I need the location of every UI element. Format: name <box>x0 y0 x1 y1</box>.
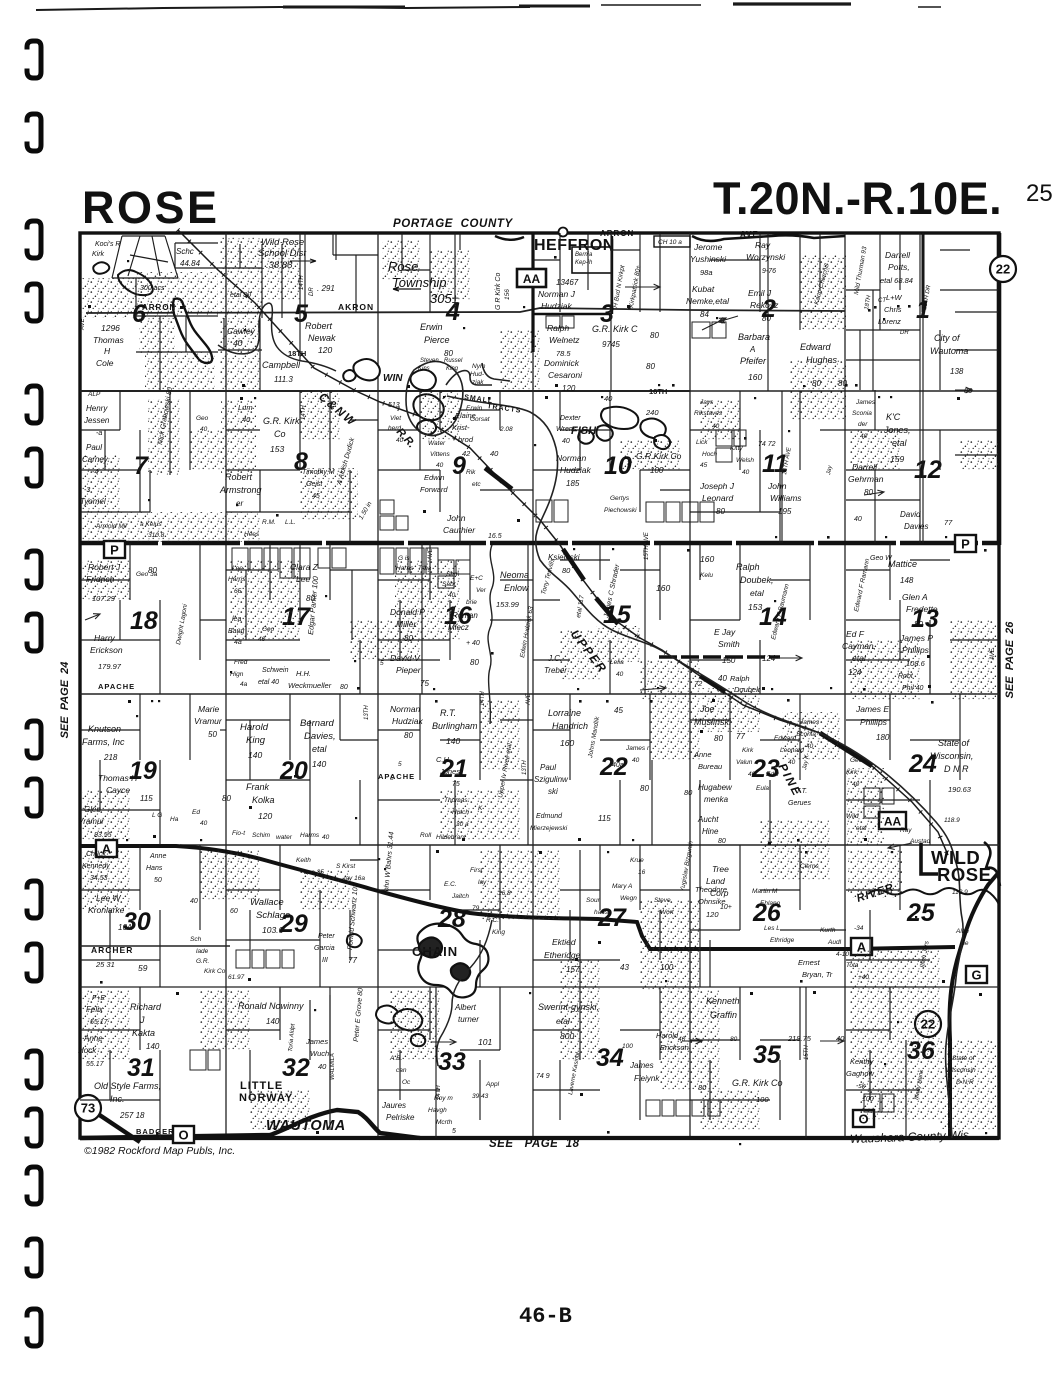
svg-text:40: 40 <box>318 1062 327 1071</box>
svg-text:APACHE: APACHE <box>98 682 135 691</box>
svg-text:Lick: Lick <box>696 439 708 446</box>
svg-text:5: 5 <box>452 1128 456 1135</box>
svg-text:Krue: Krue <box>630 857 644 864</box>
svg-text:Mattice: Mattice <box>888 559 917 569</box>
svg-text:40: 40 <box>742 469 750 476</box>
svg-text:Hugabew: Hugabew <box>698 783 733 792</box>
svg-text:Rik: Rik <box>466 469 476 476</box>
svg-text:H.H.: H.H. <box>296 669 311 678</box>
svg-text:16A: 16A <box>118 923 132 932</box>
svg-text:G.R. Kirk Co: G.R. Kirk Co <box>732 1078 783 1088</box>
svg-text:H: H <box>104 346 111 356</box>
svg-text:Bernard: Bernard <box>300 718 335 729</box>
svg-text:16: 16 <box>638 869 646 876</box>
svg-text:Neoma: Neoma <box>500 570 529 580</box>
svg-text:44.84: 44.84 <box>180 259 201 268</box>
svg-text:Water: Water <box>428 440 446 447</box>
svg-text:Kurth: Kurth <box>820 927 836 934</box>
svg-text:59: 59 <box>138 963 148 973</box>
svg-text:107.29: 107.29 <box>92 594 116 603</box>
svg-text:9-76: 9-76 <box>762 268 776 275</box>
svg-text:-4: -4 <box>92 469 98 476</box>
svg-text:John: John <box>446 513 466 523</box>
svg-text:75: 75 <box>420 679 429 688</box>
svg-text:Pierce: Pierce <box>424 335 450 345</box>
svg-text:77: 77 <box>944 518 953 527</box>
svg-text:80: 80 <box>716 507 725 516</box>
svg-text:F+E: F+E <box>92 995 105 1002</box>
svg-text:Darrell: Darrell <box>885 250 911 260</box>
svg-text:Graffin: Graffin <box>710 1010 737 1020</box>
svg-text:Doubek: Doubek <box>734 685 761 694</box>
svg-text:haus: haus <box>594 909 609 916</box>
svg-text:31: 31 <box>127 1054 155 1082</box>
svg-text:Krist-: Krist- <box>452 423 470 432</box>
svg-text:Farms, Inc: Farms, Inc <box>82 737 125 747</box>
svg-text:City of: City of <box>934 333 961 343</box>
svg-text:80: 80 <box>718 838 726 845</box>
svg-text:Baug: Baug <box>228 628 244 635</box>
svg-text:K: K <box>478 805 483 812</box>
svg-text:CH 10 a: CH 10 a <box>658 239 682 246</box>
svg-text:140: 140 <box>146 1042 160 1051</box>
svg-text:Burlingham: Burlingham <box>432 721 478 731</box>
svg-text:40: 40 <box>748 771 756 778</box>
svg-text:James P: James P <box>899 633 933 643</box>
svg-text:Hees: Hees <box>244 531 260 538</box>
svg-text:R.M.: R.M. <box>262 519 276 526</box>
svg-text:Norman J: Norman J <box>538 289 576 299</box>
svg-text:turner: turner <box>458 1015 479 1024</box>
svg-text:103.6: 103.6 <box>262 925 284 935</box>
svg-text:73: 73 <box>81 1101 95 1116</box>
svg-text:80: 80 <box>914 620 923 629</box>
svg-text:etal: etal <box>852 653 867 663</box>
svg-text:DR: DR <box>309 287 315 296</box>
svg-text:Emil J: Emil J <box>748 288 772 298</box>
svg-text:T.T.: T.T. <box>796 788 807 795</box>
svg-text:40: 40 <box>604 394 613 403</box>
svg-text:80: 80 <box>470 658 479 667</box>
svg-text:80: 80 <box>222 794 231 803</box>
svg-text:Cauthier: Cauthier <box>443 525 476 535</box>
svg-text:CT: CT <box>878 298 887 304</box>
svg-text:159: 159 <box>890 454 904 464</box>
svg-text:Ed: Ed <box>192 809 200 816</box>
svg-text:Jaures: Jaures <box>381 1101 406 1110</box>
svg-text:Glen A: Glen A <box>902 592 928 602</box>
svg-text:G.R.: G.R. <box>196 958 210 965</box>
svg-text:Kirk: Kirk <box>92 251 105 258</box>
svg-text:40: 40 <box>242 415 251 424</box>
svg-text:100: 100 <box>660 963 674 972</box>
svg-text:80: 80 <box>640 784 649 793</box>
svg-text:Wrens: Wrens <box>556 426 577 433</box>
svg-text:etc: etc <box>472 481 481 488</box>
svg-text:120: 120 <box>318 345 332 355</box>
svg-text:Robert: Robert <box>305 321 333 331</box>
svg-text:80: 80 <box>714 734 723 743</box>
svg-text:HEFFRON: HEFFRON <box>534 237 615 254</box>
svg-text:160: 160 <box>700 554 714 564</box>
svg-text:R.T.: R.T. <box>440 708 456 718</box>
svg-text:18: 18 <box>130 607 158 635</box>
svg-text:160: 160 <box>656 583 670 593</box>
svg-text:etal 80: etal 80 <box>230 292 251 299</box>
svg-text:61.97: 61.97 <box>228 974 245 981</box>
svg-text:140: 140 <box>312 759 326 769</box>
svg-text:40: 40 <box>396 437 404 444</box>
svg-text:218.75: 218.75 <box>787 1034 812 1043</box>
svg-text:34: 34 <box>596 1044 624 1072</box>
svg-text:Wisconsin: Wisconsin <box>946 1067 976 1074</box>
svg-text:Albert: Albert <box>454 1003 477 1012</box>
svg-text:Gerues: Gerues <box>788 800 811 807</box>
svg-text:80: 80 <box>812 379 821 388</box>
svg-text:G: G <box>971 968 981 983</box>
svg-text:P: P <box>961 537 970 552</box>
svg-text:16TH: 16TH <box>649 387 667 396</box>
svg-text:G.R. Kirk: G.R. Kirk <box>263 416 300 426</box>
svg-text:160: 160 <box>748 372 762 382</box>
svg-text:Forward: Forward <box>420 485 448 494</box>
svg-text:7: 7 <box>134 452 149 480</box>
svg-text:Ver: Ver <box>476 587 487 594</box>
svg-text:153.99: 153.99 <box>496 600 520 609</box>
svg-text:25: 25 <box>906 899 936 927</box>
svg-text:D N R: D N R <box>956 1079 974 1086</box>
svg-text:18TH: 18TH <box>288 349 306 358</box>
svg-text:Campbell: Campbell <box>262 360 301 370</box>
svg-text:80: 80 <box>404 731 413 740</box>
svg-text:Robert J: Robert J <box>88 562 121 572</box>
svg-text:+ 40: + 40 <box>466 640 480 647</box>
svg-text:Jones,: Jones, <box>883 425 911 435</box>
svg-text:King: King <box>246 735 266 746</box>
svg-text:Sconia: Sconia <box>852 410 872 417</box>
svg-text:Newak: Newak <box>308 333 336 343</box>
svg-text:Tota: Tota <box>846 962 859 969</box>
svg-text:. 291: . 291 <box>317 284 335 293</box>
svg-text:40: 40 <box>200 820 208 827</box>
svg-text:180: 180 <box>876 733 890 742</box>
svg-text:2.08: 2.08 <box>499 426 513 433</box>
svg-text:Austad: Austad <box>909 838 931 845</box>
svg-text:Hudziak: Hudziak <box>392 716 423 726</box>
svg-text:Swerint-gynski,: Swerint-gynski, <box>538 1002 599 1012</box>
svg-text:State of: State of <box>952 1055 976 1062</box>
svg-text:Tree: Tree <box>712 864 729 874</box>
svg-text:80: 80 <box>684 788 693 797</box>
svg-text:157: 157 <box>566 965 580 974</box>
svg-text:Hock: Hock <box>78 1046 97 1055</box>
svg-text:115: 115 <box>140 794 153 803</box>
svg-text:etal 68.84: etal 68.84 <box>880 276 913 285</box>
svg-text:Ehlano: Ehlano <box>760 900 781 907</box>
svg-text:40: 40 <box>562 438 570 445</box>
svg-text:Erwin: Erwin <box>420 322 443 332</box>
svg-text:Jessen: Jessen <box>83 416 110 425</box>
svg-text:Roman: Roman <box>452 611 478 620</box>
svg-text:brod: brod <box>458 435 474 444</box>
svg-text:Ray: Ray <box>755 240 771 250</box>
svg-text:Anne: Anne <box>149 853 166 860</box>
svg-text:WALMILA: WALMILA <box>330 1053 336 1080</box>
svg-text:CHAIN: CHAIN <box>412 944 458 959</box>
svg-text:Harris: Harris <box>396 565 414 572</box>
svg-text:Albe: Albe <box>955 928 969 935</box>
svg-text:42: 42 <box>462 449 471 458</box>
svg-text:800: 800 <box>560 1031 574 1041</box>
svg-text:15TH AVE: 15TH AVE <box>644 531 650 560</box>
svg-text:80: 80 <box>562 566 571 575</box>
svg-text:40: 40 <box>860 433 868 440</box>
svg-text:Bryan, Tr: Bryan, Tr <box>802 970 833 979</box>
svg-text:80: 80 <box>650 331 659 340</box>
svg-text:120: 120 <box>706 910 719 919</box>
svg-text:13467: 13467 <box>556 278 579 287</box>
svg-text:lea: lea <box>232 616 241 623</box>
svg-text:AVE: AVE <box>740 230 759 239</box>
svg-text:Pelriske: Pelriske <box>386 1113 415 1122</box>
svg-text:Gagnow: Gagnow <box>846 1069 875 1078</box>
svg-text:S Kirst: S Kirst <box>336 863 356 870</box>
svg-text:Erickson: Erickson <box>90 645 123 655</box>
svg-text:Ray: Ray <box>900 827 912 834</box>
svg-text:Wild: Wild <box>846 813 859 820</box>
svg-text:Valun: Valun <box>736 759 753 766</box>
svg-text:James: James <box>305 1037 328 1046</box>
svg-text:Williams: Williams <box>770 493 802 503</box>
svg-text:40: 40 <box>616 671 624 678</box>
svg-text:25: 25 <box>1026 180 1053 207</box>
svg-text:Schlage: Schlage <box>256 910 290 921</box>
svg-text:Henry: Henry <box>86 404 108 413</box>
svg-text:der: der <box>858 421 868 428</box>
svg-text:Jerome: Jerome <box>693 242 723 252</box>
svg-text:-3: -3 <box>84 487 90 494</box>
svg-text:Edward: Edward <box>800 342 832 352</box>
svg-text:4a: 4a <box>240 681 248 688</box>
svg-text:Szigulinw: Szigulinw <box>534 775 569 784</box>
svg-text:Harold: Harold <box>656 1031 679 1040</box>
svg-text:Fleiynk: Fleiynk <box>634 1074 660 1083</box>
svg-text:Geo 3a: Geo 3a <box>136 571 158 578</box>
svg-text:Piechowski: Piechowski <box>604 507 637 514</box>
svg-text:310.8: 310.8 <box>148 532 165 539</box>
svg-text:Geo: Geo <box>262 626 275 633</box>
svg-text:Kakta: Kakta <box>132 1028 155 1038</box>
svg-text:Appl: Appl <box>485 1081 500 1088</box>
svg-text:Schwein: Schwein <box>262 667 289 674</box>
svg-text:Miller: Miller <box>396 619 417 629</box>
svg-text:James E: James E <box>855 704 889 714</box>
svg-text:ALP: ALP <box>87 391 101 398</box>
svg-text:80: 80 <box>444 349 453 358</box>
svg-text:Ralph: Ralph <box>736 562 760 572</box>
svg-text:46-B: 46-B <box>519 1304 572 1329</box>
svg-text:G.R.Kirk Co: G.R.Kirk Co <box>636 451 682 461</box>
svg-text:John: John <box>767 481 787 491</box>
svg-text:Hutch: Hutch <box>452 809 469 816</box>
svg-text:Timothy M: Timothy M <box>302 469 335 476</box>
svg-text:Wautoma: Wautoma <box>930 346 968 356</box>
svg-text:Bureau: Bureau <box>698 762 723 771</box>
svg-text:Richard: Richard <box>130 1002 162 1012</box>
svg-text:40: 40 <box>788 759 796 766</box>
svg-text:G.R. Kirk C: G.R. Kirk C <box>592 324 638 334</box>
svg-text:79: 79 <box>472 905 480 912</box>
svg-text:L G: L G <box>152 812 162 819</box>
svg-text:98a: 98a <box>700 268 713 277</box>
svg-text:218: 218 <box>103 753 118 762</box>
svg-text:16.8: 16.8 <box>498 890 511 897</box>
svg-text:Hans: Hans <box>146 865 163 872</box>
svg-text:Marie: Marie <box>198 704 220 714</box>
svg-text:Armold Mil: Armold Mil <box>95 523 127 530</box>
svg-text:Edw: Edw <box>766 771 780 778</box>
svg-text:80: 80 <box>838 379 847 388</box>
svg-text:240: 240 <box>645 408 659 417</box>
svg-text:190.63: 190.63 <box>948 785 972 794</box>
svg-text:15TH: 15TH <box>804 1045 810 1060</box>
svg-text:Hudziak: Hudziak <box>560 465 591 475</box>
svg-text:First: First <box>470 867 484 874</box>
svg-text:39.43: 39.43 <box>472 1093 489 1100</box>
svg-text:AVE: AVE <box>990 647 996 661</box>
svg-text:45: 45 <box>312 493 320 500</box>
svg-text:80: 80 <box>340 684 348 691</box>
svg-text:ARCHER: ARCHER <box>91 945 133 955</box>
svg-text:Tyomel: Tyomel <box>80 497 106 506</box>
svg-text:Lorraine: Lorraine <box>548 708 581 718</box>
svg-text:40: 40 <box>678 1036 686 1043</box>
svg-text:Cayman,: Cayman, <box>842 641 876 651</box>
svg-text:Wort: Wort <box>660 909 675 916</box>
svg-text:Co: Co <box>274 429 286 439</box>
svg-text:40: 40 <box>852 781 860 788</box>
svg-text:60: 60 <box>230 908 238 915</box>
svg-text:Lelia: Lelia <box>610 659 624 666</box>
svg-text:108.6: 108.6 <box>906 659 926 668</box>
svg-text:O: O <box>178 1128 188 1143</box>
svg-text:Handrich: Handrich <box>552 721 588 731</box>
svg-text:40: 40 <box>200 426 208 433</box>
svg-text:Frank: Frank <box>246 782 270 792</box>
svg-text:Gorsat: Gorsat <box>470 416 491 423</box>
svg-text:T.20N.-R.10E.: T.20N.-R.10E. <box>713 173 1002 224</box>
svg-text:E Jay: E Jay <box>714 627 736 637</box>
svg-text:Jones: Jones <box>439 767 460 776</box>
svg-text:Jaitch: Jaitch <box>451 893 469 900</box>
svg-text:R.C.: R.C. <box>486 917 499 924</box>
svg-text:Harry: Harry <box>94 633 116 643</box>
svg-text:124: 124 <box>762 654 776 663</box>
svg-text:50: 50 <box>154 877 162 884</box>
svg-text:Darrell: Darrell <box>852 462 878 472</box>
svg-text:+40: +40 <box>858 974 869 981</box>
svg-text:153: 153 <box>748 602 762 612</box>
svg-text:G R Kirk Co: G R Kirk Co <box>495 273 502 310</box>
svg-text:Kirk: Kirk <box>742 747 754 754</box>
svg-text:Vramur: Vramur <box>194 716 223 726</box>
svg-text:Erickson: Erickson <box>660 1043 689 1052</box>
svg-text:101: 101 <box>478 1037 492 1047</box>
svg-text:50: 50 <box>208 730 217 739</box>
svg-text:30 a: 30 a <box>456 821 469 828</box>
svg-text:Edwin: Edwin <box>424 473 444 482</box>
svg-text:APACHE: APACHE <box>378 772 415 781</box>
svg-text:etal: etal <box>312 744 328 754</box>
svg-text:Eula: Eula <box>756 785 769 792</box>
svg-text:120: 120 <box>562 384 576 393</box>
svg-text:water: water <box>276 834 293 841</box>
svg-text:33: 33 <box>438 1048 466 1076</box>
svg-text:Potts,: Potts, <box>888 262 910 272</box>
svg-text:Mierzejewski: Mierzejewski <box>530 825 568 832</box>
svg-text:D N R: D N R <box>944 764 969 774</box>
svg-text:AVE: AVE <box>428 547 434 561</box>
svg-text:Fridrich: Fridrich <box>86 574 115 584</box>
svg-text:ski: ski <box>548 787 558 796</box>
svg-text:Wallace: Wallace <box>250 897 284 908</box>
svg-text:257 18: 257 18 <box>119 1111 145 1120</box>
svg-text:16.5: 16.5 <box>488 533 502 540</box>
svg-text:40: 40 <box>490 449 499 458</box>
svg-text:Dexter: Dexter <box>560 415 581 422</box>
svg-text:35: 35 <box>753 1041 782 1069</box>
svg-text:A.B.: A.B. <box>389 1055 402 1062</box>
svg-text:Hoch: Hoch <box>702 451 718 458</box>
svg-text:Rekosz: Rekosz <box>750 300 779 310</box>
svg-text:James: James <box>799 719 820 726</box>
svg-text:Jays: Jays <box>699 399 714 406</box>
svg-text:Enlow: Enlow <box>504 583 529 593</box>
svg-text:Russel: Russel <box>444 358 463 364</box>
svg-text:A: A <box>749 345 755 354</box>
svg-text:Vramur: Vramur <box>78 817 104 826</box>
svg-text:Mary A: Mary A <box>612 883 632 890</box>
svg-text:Norman: Norman <box>390 704 421 714</box>
svg-text:Steve: Steve <box>654 897 671 904</box>
svg-text:DR: DR <box>900 330 909 336</box>
svg-text:111.3: 111.3 <box>274 375 293 384</box>
svg-text:80: 80 <box>730 1036 738 1043</box>
svg-text:Lee: Lee <box>232 565 243 572</box>
svg-text:Koci's R: Koci's R <box>95 241 120 248</box>
svg-text:23: 23 <box>751 755 780 783</box>
svg-text:James: James <box>855 399 876 406</box>
svg-text:can: can <box>396 1067 407 1074</box>
svg-text:menka: menka <box>704 795 729 804</box>
svg-text:115: 115 <box>598 814 611 823</box>
svg-text:State of: State of <box>938 738 971 748</box>
svg-text:Felix: Felix <box>86 1005 104 1014</box>
svg-text:Inc.: Inc. <box>110 1094 125 1104</box>
svg-text:Ralph: Ralph <box>730 674 750 683</box>
svg-text:Harms: Harms <box>300 832 320 839</box>
svg-text:195: 195 <box>778 507 792 516</box>
svg-text:AA: AA <box>523 272 541 286</box>
svg-text:Les L: Les L <box>764 925 780 932</box>
svg-text:Davies,: Davies, <box>304 731 336 742</box>
svg-text:etal: etal <box>856 825 867 832</box>
svg-text:20: 20 <box>279 757 308 785</box>
svg-text:Havgh: Havgh <box>428 1107 447 1114</box>
svg-text:Kirk: Kirk <box>846 769 858 776</box>
svg-text:40: 40 <box>190 898 198 905</box>
svg-text:80: 80 <box>864 488 873 497</box>
